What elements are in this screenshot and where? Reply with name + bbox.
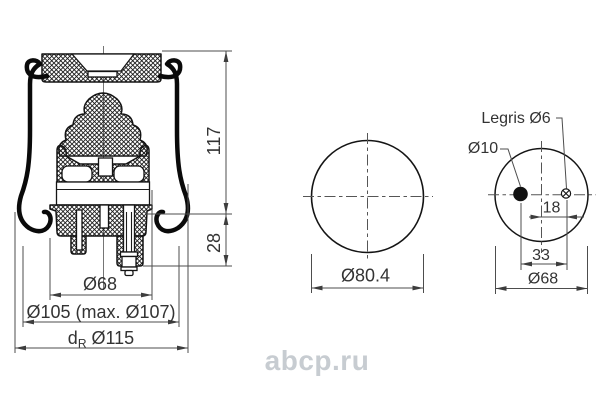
stud-hole: [513, 187, 528, 202]
air-passage: [100, 205, 109, 228]
arrowhead: [224, 255, 229, 266]
bump-stop: [59, 93, 147, 156]
dim-height: 117: [204, 127, 224, 156]
bumper-mount-hole: [99, 158, 113, 176]
bolt-nut: [122, 257, 136, 268]
bead-plate-slot: [88, 72, 117, 78]
bellows-left-wall: [19, 60, 50, 231]
bellows-right-wall: [156, 60, 187, 231]
arrowhead: [521, 262, 532, 267]
dim-subscript: R: [78, 337, 87, 351]
watermark: abcp.ru: [265, 345, 370, 376]
bolt-tip: [125, 271, 133, 276]
saddle-cavity-right: [114, 166, 144, 182]
arrowhead: [312, 286, 323, 291]
piston-skirt: [57, 182, 150, 205]
dim-diameter: Ø80.4: [341, 266, 390, 286]
dim-rolling-diameter: dRØ115: [68, 328, 134, 351]
arrowhead: [556, 262, 567, 267]
arrowhead: [577, 286, 588, 291]
arrowhead: [224, 214, 229, 225]
dim-plate-diameter: Ø68: [528, 271, 558, 288]
bolt-washer: [121, 252, 138, 257]
arrowhead: [177, 346, 188, 351]
arrowhead: [224, 203, 229, 214]
dim-port-offset: 18: [543, 200, 561, 217]
saddle-cavity-left: [62, 166, 92, 182]
dim-value: Ø115: [91, 328, 134, 348]
bottom-view: Legris Ø6 Ø10 18 33 Ø68: [468, 110, 596, 294]
label-stud-hole: Ø10: [468, 140, 498, 157]
arrowhead: [50, 293, 61, 298]
label-air-port: Legris Ø6: [481, 110, 550, 127]
air-spring-drawing: 117 28 Ø68 Ø105 (max. Ø107) dRØ115 Ø80.4: [0, 0, 600, 400]
arrowhead: [141, 293, 152, 298]
arrowhead: [413, 286, 424, 291]
dim-piston-diameter: Ø68: [83, 274, 117, 294]
stud-bore: [77, 210, 83, 250]
arrowhead: [496, 286, 507, 291]
dim-hole-spacing: 33: [532, 247, 550, 264]
arrowhead: [15, 346, 26, 351]
arrowhead: [224, 51, 229, 62]
bolt-bore: [124, 205, 135, 252]
dim-lower-height: 28: [204, 233, 224, 253]
technical-drawing-page: 117 28 Ø68 Ø105 (max. Ø107) dRØ115 Ø80.4: [0, 0, 600, 400]
dim-prefix: d: [68, 328, 78, 348]
top-view: Ø80.4: [303, 133, 433, 293]
section-view: [19, 46, 188, 290]
dim-bellows-max-diameter: Ø105 (max. Ø107): [26, 302, 175, 322]
